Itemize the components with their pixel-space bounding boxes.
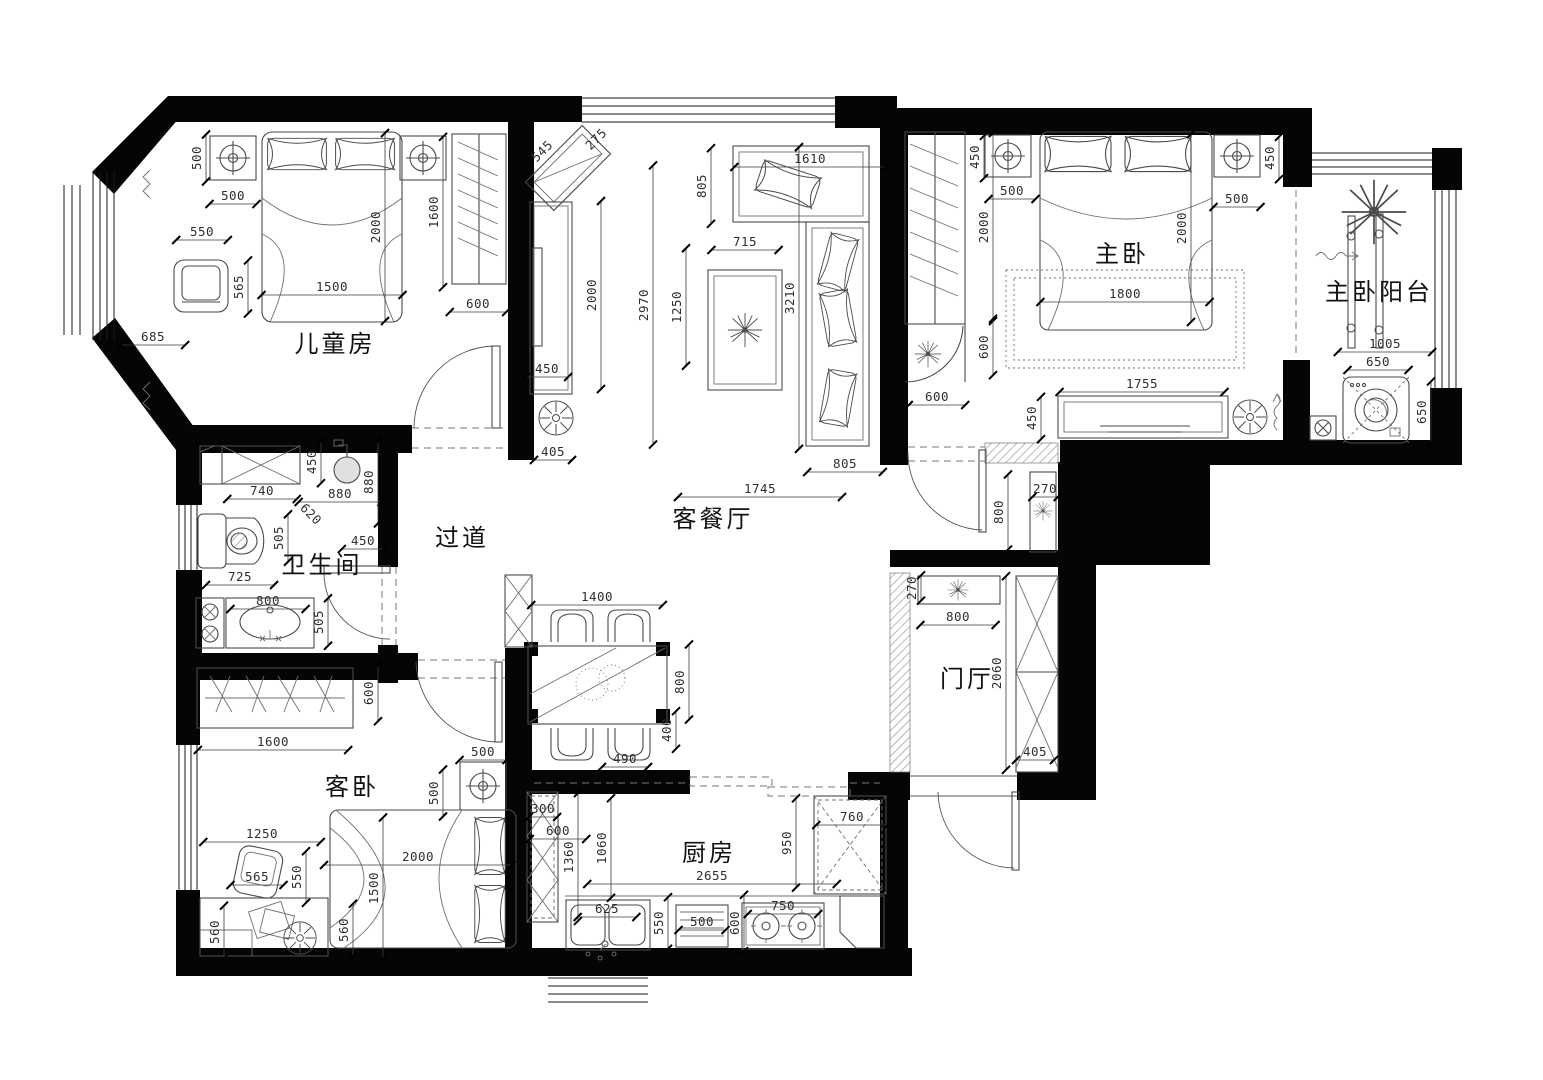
fan: [284, 922, 316, 954]
svg-text:500: 500: [221, 188, 245, 203]
svg-text:500: 500: [1225, 191, 1249, 206]
dimension-annotation: 1250: [669, 244, 690, 370]
svg-text:2060: 2060: [989, 657, 1004, 689]
hall-cabinet: [505, 575, 532, 647]
svg-text:1250: 1250: [246, 826, 278, 841]
furniture-entrance-hall: [918, 472, 1058, 772]
dimension-annotation: 950: [779, 794, 800, 891]
armchair: [174, 260, 228, 312]
dimension-annotation: 805: [694, 144, 715, 228]
svg-text:650: 650: [1414, 400, 1429, 424]
room-label-hallway: 过道: [435, 525, 489, 552]
svg-text:500: 500: [1000, 183, 1024, 198]
room-label-guest-bedroom: 客卧: [325, 774, 379, 801]
svg-text:950: 950: [779, 831, 794, 855]
svg-text:725: 725: [228, 569, 252, 584]
svg-text:805: 805: [694, 174, 709, 198]
room-label-master-bedroom: 主卧: [1095, 241, 1149, 268]
dimension-annotation: 1610: [730, 151, 889, 171]
svg-text:450: 450: [1024, 406, 1039, 430]
svg-text:300: 300: [531, 801, 555, 816]
dimension-annotation: 760: [812, 809, 891, 829]
door-arc-children: [414, 346, 496, 428]
dimension-annotation: 550: [651, 893, 672, 953]
dining-set: [524, 610, 670, 760]
svg-text:550: 550: [651, 911, 666, 935]
dimension-annotation: 620: [297, 500, 325, 528]
svg-text:750: 750: [771, 898, 795, 913]
svg-text:2655: 2655: [696, 868, 728, 883]
dimension-annotation: 3210: [782, 143, 803, 453]
svg-text:600: 600: [976, 335, 991, 359]
svg-text:800: 800: [256, 593, 280, 608]
furniture-children-room: [143, 132, 506, 410]
dimension-annotation: 550: [172, 224, 232, 244]
svg-text:500: 500: [690, 914, 714, 929]
svg-text:565: 565: [231, 275, 246, 299]
svg-text:3210: 3210: [782, 282, 797, 314]
svg-text:805: 805: [833, 456, 857, 471]
window-balcony-right: [1435, 190, 1456, 388]
svg-text:1755: 1755: [1126, 376, 1158, 391]
svg-text:1250: 1250: [669, 291, 684, 323]
dimension-annotation: 750: [744, 898, 823, 918]
dimension-annotation: 1600: [426, 133, 447, 291]
bed: [330, 810, 516, 948]
stool: [539, 401, 573, 435]
svg-text:1005: 1005: [1369, 336, 1401, 351]
dimension-annotation: 500: [1210, 191, 1265, 211]
svg-text:450: 450: [535, 361, 559, 376]
svg-text:600: 600: [466, 296, 490, 311]
tv-cabinet: [1058, 396, 1228, 438]
shoe-cabinet: [1016, 576, 1058, 772]
svg-text:1400: 1400: [581, 589, 613, 604]
svg-text:1800: 1800: [1109, 286, 1141, 301]
svg-text:880: 880: [361, 470, 376, 494]
flow-arrow: [1316, 252, 1358, 260]
dimension-annotation: 2655: [583, 868, 841, 888]
dimension-annotation: 1745: [674, 481, 846, 501]
dimension-annotation: 2970: [636, 161, 657, 448]
plant: [1342, 180, 1407, 245]
corner-unit: [840, 896, 884, 948]
dimension-annotation: 270: [1028, 481, 1061, 501]
svg-text:1500: 1500: [316, 279, 348, 294]
rug: [1006, 270, 1244, 368]
svg-text:625: 625: [595, 901, 619, 916]
svg-text:1745: 1745: [744, 481, 776, 496]
svg-text:270: 270: [1033, 481, 1057, 496]
dimension-annotation: 565: [231, 256, 252, 317]
dimension-annotation: 650: [1343, 354, 1412, 374]
railing-bay-exterior: [64, 185, 80, 335]
dimension-annotation: 800: [226, 593, 309, 613]
dimension-annotation: 600: [446, 296, 510, 316]
dimension-annotation: 450: [1024, 393, 1045, 443]
sliding-door-kitchen: [690, 777, 850, 796]
window-living-top: [582, 98, 835, 122]
coffee-table: [708, 270, 782, 390]
window-guest-left: [179, 745, 197, 890]
svg-text:1600: 1600: [257, 734, 289, 749]
door-leaf-children: [492, 346, 500, 428]
svg-text:450: 450: [967, 145, 982, 169]
dimension-annotation: 800: [916, 609, 999, 629]
svg-text:685: 685: [141, 329, 165, 344]
window-bathroom-left: [179, 505, 197, 570]
room-label-children-room: 儿童房: [295, 331, 376, 358]
dimension-annotation: 1250: [199, 826, 325, 846]
room-label-kitchen: 厨房: [682, 840, 736, 867]
svg-text:500: 500: [471, 744, 495, 759]
door-arc-guest: [416, 662, 498, 742]
walls-layer: [92, 96, 1462, 976]
console-shelf: [918, 576, 1000, 604]
window-kitchen-exterior: [548, 978, 648, 1002]
dimension-annotation: 2000: [584, 197, 605, 393]
svg-text:2970: 2970: [636, 289, 651, 321]
chair: [608, 610, 650, 642]
svg-text:1360: 1360: [561, 841, 576, 873]
dimension-annotation: 625: [574, 901, 641, 921]
svg-text:2000: 2000: [402, 849, 434, 864]
svg-text:505: 505: [311, 610, 326, 634]
dimension-annotation: 500: [456, 744, 511, 764]
furniture-living-dining: [505, 126, 869, 760]
dimension-annotation: 1400: [527, 589, 667, 609]
door-leaf-guest: [495, 662, 502, 742]
svg-text:600: 600: [361, 681, 376, 705]
svg-text:405: 405: [541, 444, 565, 459]
dimension-annotation: 715: [707, 234, 782, 254]
door-arc-bathroom: [324, 573, 390, 639]
dimension-annotation: 740: [223, 483, 301, 503]
dimension-annotation: 500: [675, 914, 730, 934]
svg-text:450: 450: [351, 533, 375, 548]
window-bay-left: [93, 172, 114, 340]
svg-text:800: 800: [991, 500, 1006, 524]
dimension-annotation: 1800: [1036, 286, 1213, 306]
svg-text:400: 400: [659, 718, 674, 742]
svg-text:550: 550: [190, 224, 214, 239]
svg-text:1600: 1600: [426, 196, 441, 228]
dimension-annotation: 2000: [320, 849, 516, 869]
dimension-annotation: 1060: [594, 794, 615, 902]
svg-text:270: 270: [904, 576, 919, 600]
svg-text:505: 505: [271, 526, 286, 550]
dimension-annotation: 1500: [366, 814, 387, 963]
dimension-annotation: 805: [803, 456, 887, 476]
svg-text:560: 560: [207, 920, 222, 944]
svg-text:2000: 2000: [368, 211, 383, 243]
dimension-annotation: 500: [189, 131, 210, 186]
squiggle: [1273, 394, 1281, 430]
dimension-annotation: 450: [1262, 133, 1283, 183]
dimension-annotation: 600: [727, 891, 748, 955]
room-label-living-dining: 客餐厅: [673, 506, 754, 533]
dimension-annotation: 490: [598, 751, 652, 771]
svg-text:2000: 2000: [584, 279, 599, 311]
door-arc-entrance: [938, 792, 1014, 868]
svg-text:760: 760: [840, 809, 864, 824]
dimension-annotation: 725: [202, 569, 278, 589]
svg-text:500: 500: [189, 146, 204, 170]
chair: [551, 610, 593, 642]
dimension-annotation: 1005: [1334, 336, 1436, 356]
dimension-annotation: 600: [905, 389, 969, 409]
svg-text:600: 600: [925, 389, 949, 404]
dimension-annotation: 1600: [194, 734, 352, 754]
svg-text:2000: 2000: [976, 211, 991, 243]
room-label-entrance-hall: 门厅: [940, 666, 994, 693]
svg-text:450: 450: [304, 450, 319, 474]
furniture-guest-bedroom: [197, 668, 516, 956]
chair: [551, 728, 593, 760]
svg-text:500: 500: [426, 781, 441, 805]
window-balcony-top: [1312, 153, 1432, 174]
door-arc-master: [908, 452, 982, 530]
svg-text:715: 715: [733, 234, 757, 249]
svg-text:600: 600: [727, 911, 742, 935]
floor-drain: [1310, 416, 1336, 440]
svg-text:880: 880: [328, 486, 352, 501]
stool: [1233, 400, 1267, 434]
dimension-annotation: 2000: [368, 129, 389, 325]
dimension-annotation: 405: [530, 444, 576, 464]
svg-text:800: 800: [672, 670, 687, 694]
room-label-master-balcony: 主卧阳台: [1325, 279, 1433, 306]
door-leaf-entrance: [1012, 792, 1019, 870]
svg-text:740: 740: [250, 483, 274, 498]
dimension-annotation: 500: [426, 766, 447, 821]
svg-text:560: 560: [336, 918, 351, 942]
washing-machine: [1343, 377, 1409, 443]
svg-text:405: 405: [1023, 744, 1047, 759]
floor-plan-svg: 儿童房主卧主卧阳台客餐厅过道卫生间门厅客卧厨房50050055056515002…: [0, 0, 1543, 1080]
window-arrow: [143, 170, 150, 198]
svg-text:800: 800: [946, 609, 970, 624]
svg-text:1500: 1500: [366, 872, 381, 904]
room-label-bathroom: 卫生间: [282, 552, 363, 579]
svg-text:1060: 1060: [594, 832, 609, 864]
sofa: [733, 146, 869, 446]
svg-text:490: 490: [613, 751, 637, 766]
svg-text:2000: 2000: [1174, 212, 1189, 244]
dimension-annotation: 800: [991, 470, 1012, 553]
svg-text:550: 550: [289, 865, 304, 889]
furniture-balcony: [1310, 180, 1409, 443]
dimension-annotation: 500: [206, 188, 261, 208]
dimension-annotation: 600: [976, 315, 997, 379]
svg-text:565: 565: [245, 869, 269, 884]
dimension-annotation: 1755: [1056, 376, 1229, 396]
wardrobe: [905, 132, 965, 382]
svg-text:650: 650: [1366, 354, 1390, 369]
svg-text:620: 620: [297, 500, 325, 528]
labels-layer: 儿童房主卧主卧阳台客餐厅过道卫生间门厅客卧厨房50050055056515002…: [117, 125, 1436, 962]
wardrobe: [452, 134, 506, 284]
toilet: [198, 514, 264, 568]
svg-text:450: 450: [1262, 146, 1277, 170]
floor-plan-canvas: 儿童房主卧主卧阳台客餐厅过道卫生间门厅客卧厨房50050055056515002…: [0, 0, 1543, 1080]
svg-text:600: 600: [546, 823, 570, 838]
